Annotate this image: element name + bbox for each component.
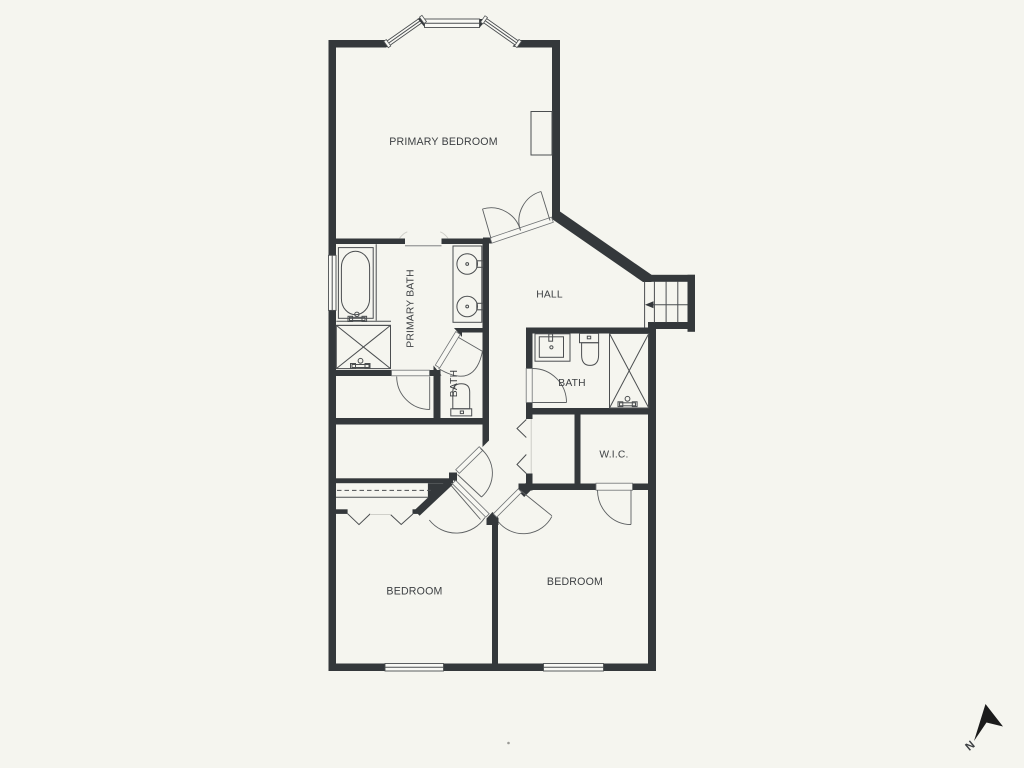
svg-text:HALL: HALL (536, 289, 563, 300)
svg-text:BATH: BATH (558, 378, 586, 389)
svg-text:W.I.C.: W.I.C. (599, 449, 628, 460)
svg-text:BATH: BATH (449, 370, 460, 398)
svg-text:BEDROOM: BEDROOM (547, 576, 603, 588)
svg-text:BEDROOM: BEDROOM (386, 586, 442, 598)
svg-text:PRIMARY BEDROOM: PRIMARY BEDROOM (389, 136, 498, 148)
svg-text:PRIMARY BATH: PRIMARY BATH (406, 269, 417, 348)
